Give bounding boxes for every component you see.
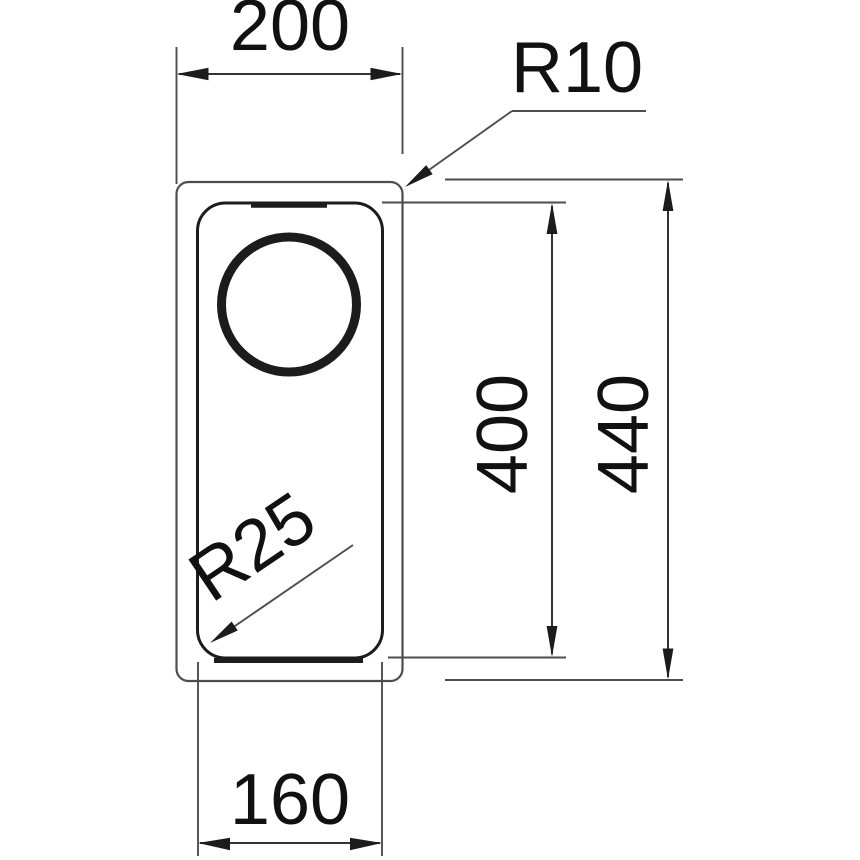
arrowhead-up-icon xyxy=(663,180,674,211)
dim-outer-width-label: 200 xyxy=(230,0,350,66)
drain-circle xyxy=(222,237,357,372)
arrowhead-right-icon xyxy=(350,838,382,850)
radius-outer-label: R10 xyxy=(511,28,643,108)
dim-bowl-width-label: 160 xyxy=(230,760,350,840)
arrowhead-down-icon xyxy=(547,626,558,657)
sink-outer-outline xyxy=(177,182,403,681)
dim-outer-length-label: 440 xyxy=(584,374,664,494)
dim-bowl-length-label: 400 xyxy=(463,374,543,494)
leader-arrowhead-icon xyxy=(210,622,238,644)
dimension-drawing: 200 R10 400 440 R25 160 xyxy=(0,0,860,860)
arrowhead-right-icon xyxy=(371,68,403,80)
dim-bowl-length: 400 xyxy=(382,203,566,658)
arrowhead-left-icon xyxy=(198,838,230,850)
arrowhead-left-icon xyxy=(177,68,209,80)
leader-arrowhead-icon xyxy=(405,165,433,187)
dim-outer-width: 200 xyxy=(177,0,403,184)
callout-bowl-corner-radius: R25 xyxy=(175,477,353,643)
sink-outline-group xyxy=(177,182,403,681)
dim-bowl-width: 160 xyxy=(198,662,382,856)
arrowhead-up-icon xyxy=(547,203,558,234)
callout-outer-corner-radius: R10 xyxy=(405,28,646,187)
arrowhead-down-icon xyxy=(663,649,674,680)
